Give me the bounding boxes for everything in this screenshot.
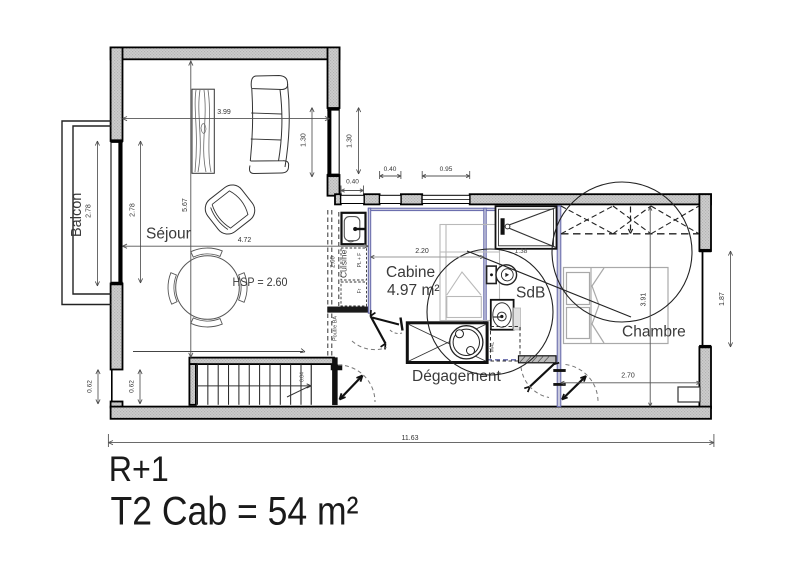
svg-text:Chambre: Chambre (622, 324, 686, 341)
svg-text:0.95: 0.95 (440, 166, 453, 173)
svg-text:2.20: 2.20 (415, 248, 429, 255)
svg-text:Poutre BA: Poutre BA (333, 316, 339, 341)
svg-text:1.87: 1.87 (719, 292, 726, 306)
svg-text:1.30: 1.30 (301, 133, 308, 147)
svg-text:3.99: 3.99 (217, 109, 231, 116)
svg-text:0.40: 0.40 (346, 179, 359, 186)
svg-text:Dégagement: Dégagement (412, 368, 501, 385)
svg-text:2.70: 2.70 (621, 373, 635, 380)
svg-text:0.62: 0.62 (129, 380, 136, 393)
svg-text:R+1: R+1 (109, 449, 169, 489)
svg-text:2.60: 2.60 (330, 256, 336, 268)
svg-text:0.40: 0.40 (384, 166, 397, 173)
svg-text:Cuisine: Cuisine (339, 249, 349, 278)
svg-text:5.67: 5.67 (182, 198, 189, 212)
svg-text:1.38: 1.38 (515, 248, 528, 255)
svg-text:2.78: 2.78 (130, 203, 137, 217)
svg-text:Balcon: Balcon (69, 193, 85, 237)
svg-text:3.91: 3.91 (641, 293, 648, 307)
svg-text:2.78: 2.78 (86, 204, 93, 218)
svg-text:T2 Cab = 54 m²: T2 Cab = 54 m² (111, 490, 359, 534)
svg-text:PL + F: PL + F (357, 253, 363, 268)
svg-text:1.30: 1.30 (347, 134, 354, 148)
svg-text:Cabine: Cabine (386, 264, 435, 281)
svg-text:HSP = 2.60: HSP = 2.60 (233, 275, 288, 289)
svg-text:SdB: SdB (516, 285, 545, 302)
svg-text:Séjour: Séjour (146, 226, 191, 243)
svg-text:Fr: Fr (357, 288, 363, 293)
svg-text:4.97 m²: 4.97 m² (387, 282, 440, 299)
svg-text:11.63: 11.63 (402, 435, 419, 442)
svg-text:0.62: 0.62 (87, 380, 94, 393)
svg-text:4.72: 4.72 (238, 237, 252, 244)
svg-text:0.84: 0.84 (300, 372, 306, 382)
